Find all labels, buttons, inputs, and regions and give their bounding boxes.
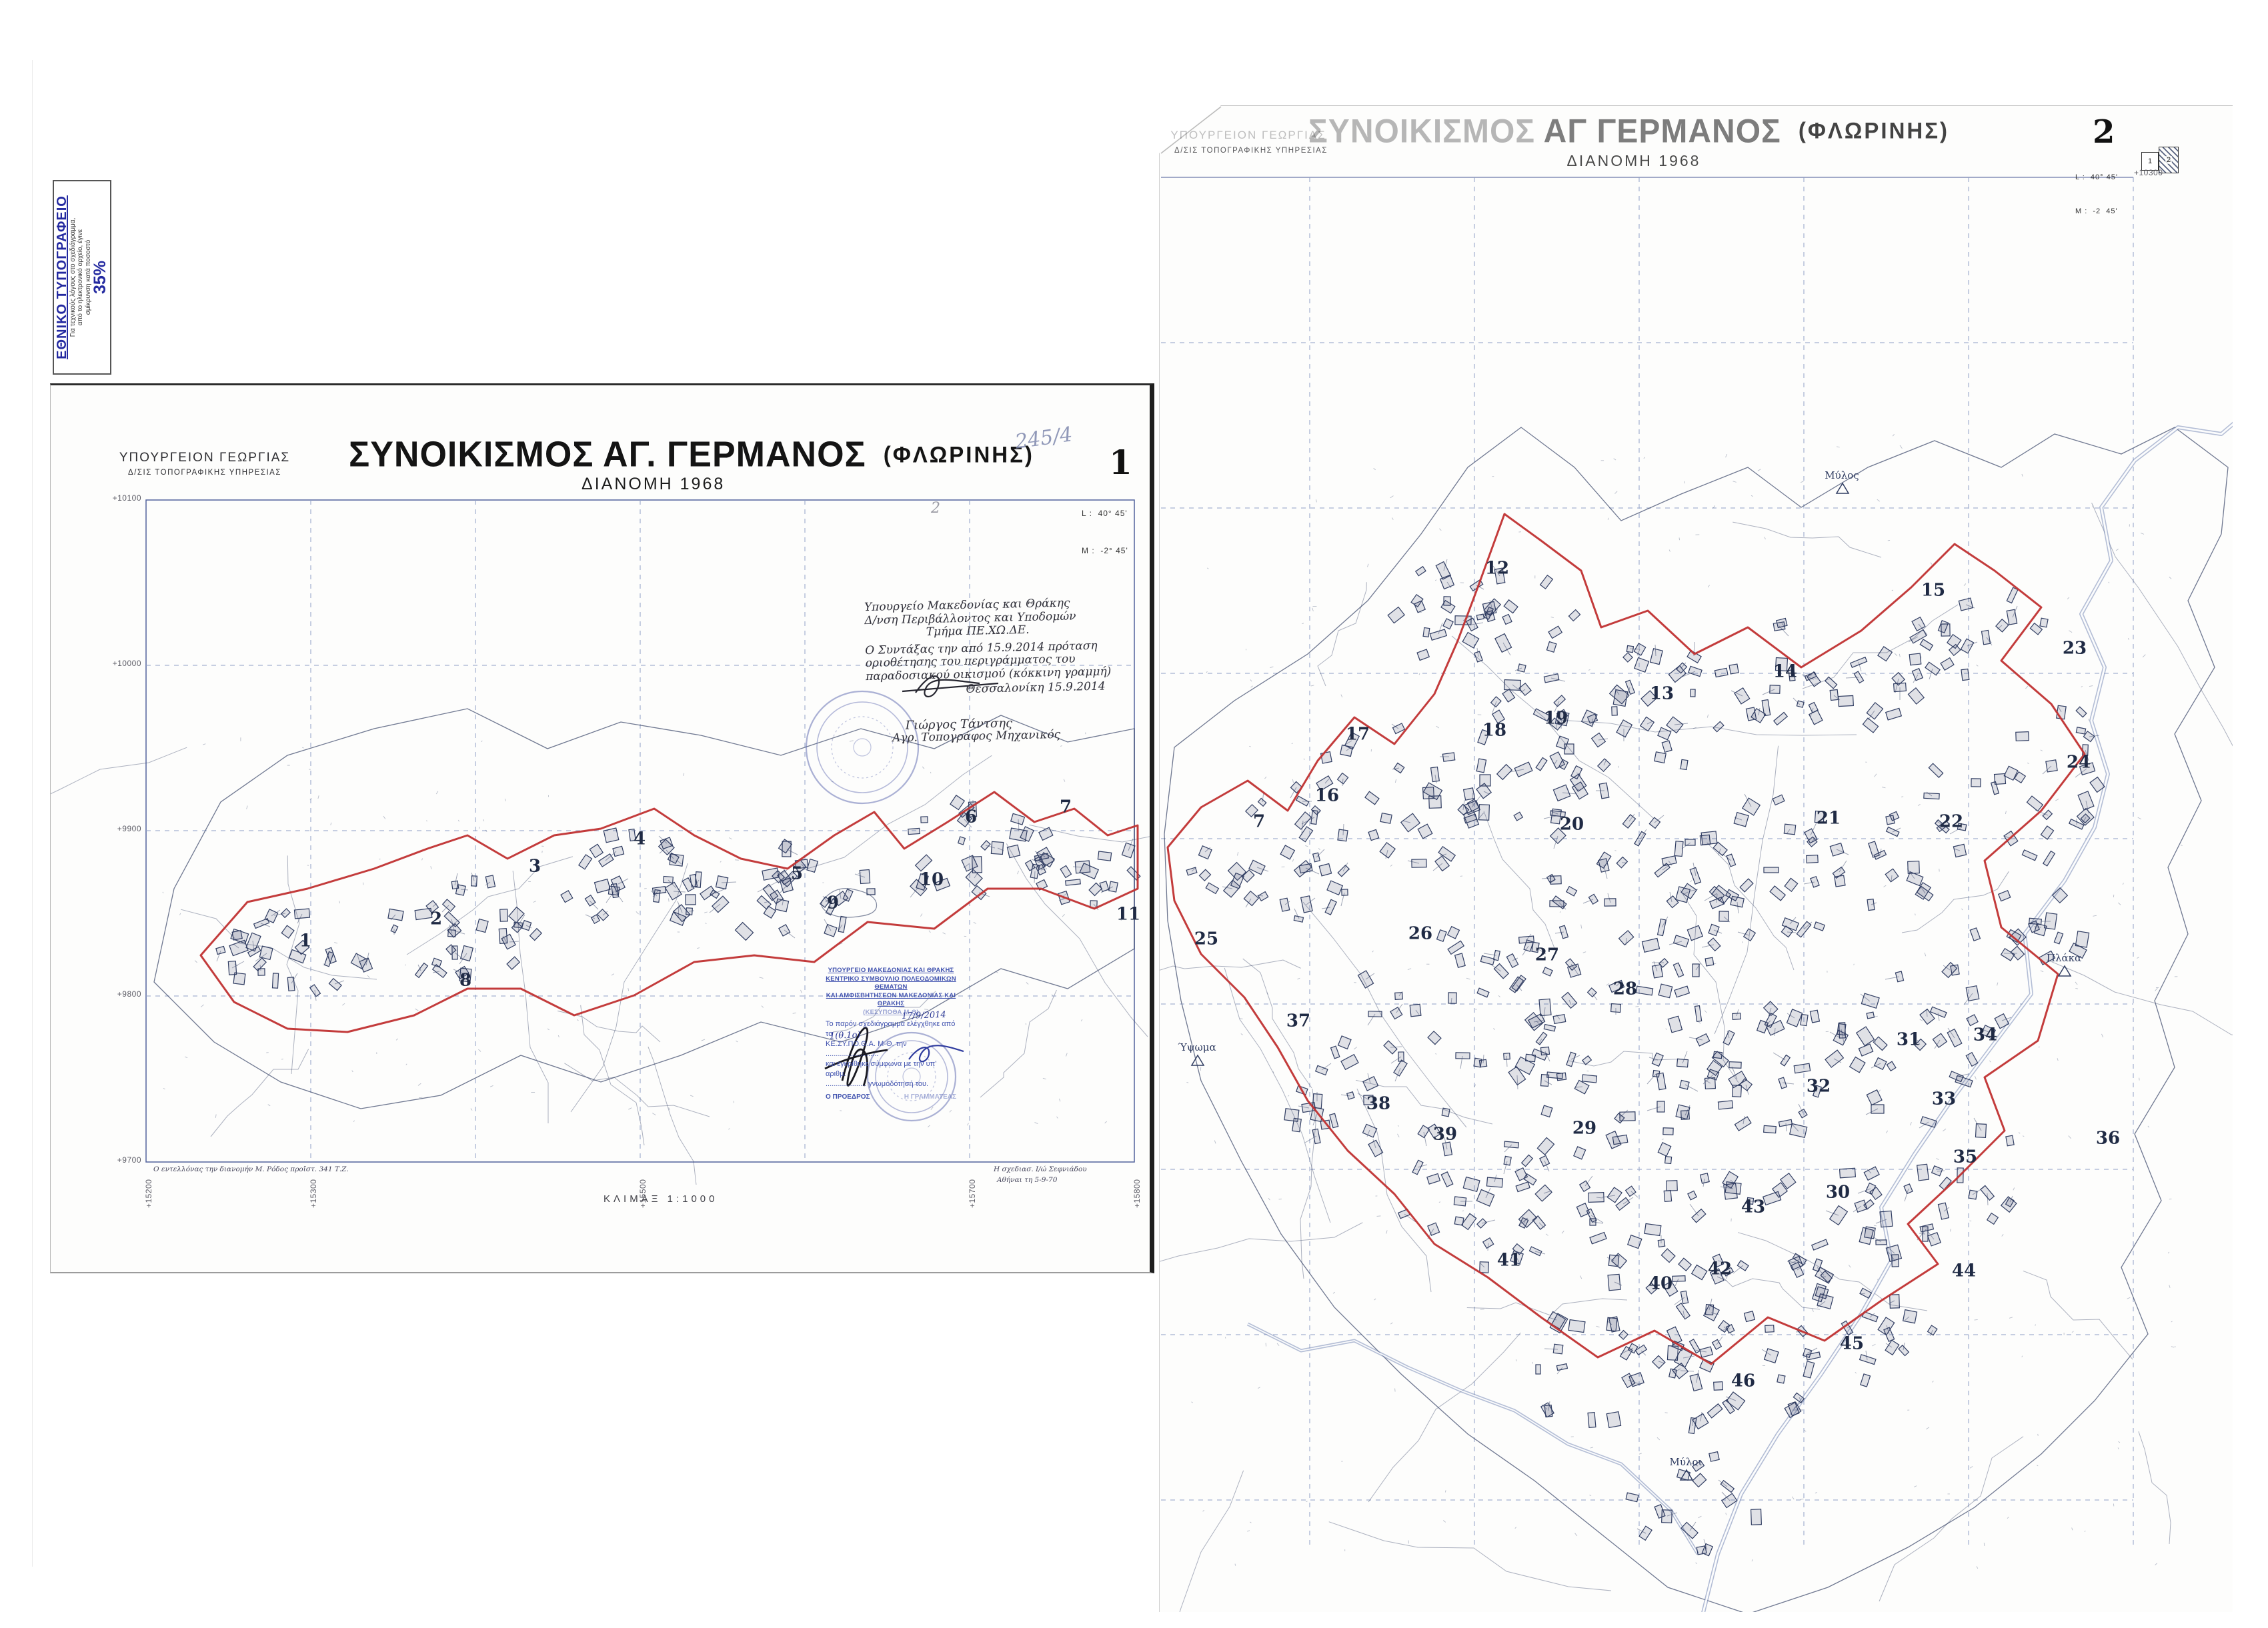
building	[1462, 1213, 1476, 1229]
scan-speck	[720, 861, 722, 863]
building	[1066, 879, 1081, 885]
stamp-header-line: ΥΠΟΥΡΓΕΙΟ ΜΑΚΕΔΟΝΙΑΣ ΚΑΙ ΘΡΑΚΗΣ	[826, 967, 956, 975]
building	[1799, 1109, 1807, 1118]
scan-speck	[353, 1121, 354, 1122]
building	[1537, 1137, 1554, 1155]
building	[1764, 1125, 1777, 1133]
scan-speck	[684, 773, 684, 776]
scan-speck	[2118, 903, 2121, 905]
scan-speck	[2039, 1047, 2040, 1047]
scan-speck	[1251, 686, 1253, 687]
sheet2-coord-l: L : 40° 45'	[2075, 172, 2118, 183]
stamp-secretary-label: Η ΓΡΑΜΜΑΤΕΑΣ	[904, 1093, 956, 1101]
building	[2043, 851, 2055, 866]
scan-speck	[2093, 915, 2097, 916]
building	[415, 963, 428, 978]
building	[1536, 1032, 1546, 1045]
building	[476, 919, 488, 932]
building	[1644, 1223, 1661, 1235]
building	[1707, 1404, 1723, 1418]
building	[1793, 1393, 1804, 1403]
building	[1864, 1167, 1879, 1180]
scan-speck	[1575, 1533, 1577, 1536]
scan-speck	[426, 821, 427, 821]
scan-speck	[533, 901, 536, 903]
sheet1-ministry: ΥΠΟΥΡΓΕΙΟΝ ΓΕΩΡΓΙΑΣ	[118, 451, 291, 465]
scan-speck	[1105, 1121, 1107, 1123]
block-number: 29	[1572, 1119, 1596, 1139]
building	[1674, 841, 1683, 857]
note-line: Θεσσαλονίκη 15.9.2014	[966, 680, 1126, 697]
building	[1442, 1108, 1450, 1117]
scan-speck	[628, 1108, 632, 1110]
building	[2076, 727, 2085, 734]
scan-speck	[1707, 715, 1708, 718]
scan-speck	[1043, 1078, 1046, 1079]
scan-speck	[2069, 631, 2072, 633]
scan-speck	[1849, 1265, 1851, 1267]
scan-speck	[652, 1113, 656, 1115]
scan-speck	[163, 1088, 165, 1089]
scan-speck	[1250, 679, 1252, 681]
scan-speck	[1989, 1061, 1991, 1062]
scan-speck	[1374, 468, 1376, 469]
building	[1462, 633, 1478, 648]
scan-speck	[431, 866, 431, 869]
scan-speck	[2141, 533, 2144, 535]
scan-speck	[1804, 1430, 1806, 1431]
scan-speck	[1679, 537, 1680, 540]
scan-speck	[1726, 1513, 1727, 1515]
building	[2041, 826, 2053, 839]
scan-speck	[1395, 1389, 1396, 1392]
building	[1550, 876, 1561, 885]
grid-label-northing: +10100	[100, 493, 141, 503]
building	[950, 795, 964, 810]
building	[1794, 1063, 1810, 1073]
building	[1442, 753, 1454, 761]
building	[1873, 1037, 1887, 1050]
scan-speck	[1493, 1029, 1494, 1030]
scan-speck	[1726, 454, 1727, 457]
parcel-line	[1733, 1265, 1743, 1273]
building	[1857, 1027, 1875, 1046]
scan-speck	[1974, 1319, 1977, 1320]
scan-speck	[1596, 1326, 1600, 1327]
building	[2027, 796, 2043, 811]
scan-speck	[1931, 563, 1932, 565]
building	[1327, 881, 1342, 895]
sheet2-title-part1: ΣΥΝΟΙΚΙΣΜΟΣ	[1308, 113, 1535, 150]
building	[1612, 707, 1617, 715]
stamp-header-line: ΚΑΙ ΑΜΦΙΣΒΗΤΗΣΕΩΝ ΜΑΚΕΔΟΝΙΑΣ ΚΑΙ ΘΡΑΚΗΣ	[826, 992, 956, 1009]
scan-speck	[490, 1085, 493, 1087]
block-number: 34	[1973, 1025, 1997, 1045]
scan-speck	[2023, 1136, 2024, 1137]
building	[1582, 1075, 1597, 1083]
building	[432, 958, 442, 967]
building	[1999, 891, 2011, 901]
scan-speck	[1367, 564, 1368, 567]
building	[1319, 863, 1331, 875]
scanned-map-document: ΕΘΝΙΚΟ ΤΥΠΟΓΡΑΦΕΙΟ Για τεχνικούς λόγους …	[0, 0, 2268, 1628]
building	[1773, 795, 1785, 805]
building	[1938, 1203, 1949, 1219]
scan-speck	[1733, 481, 1737, 483]
building	[1536, 757, 1547, 770]
building	[1504, 1156, 1511, 1165]
building	[1662, 741, 1672, 753]
building	[1502, 614, 1512, 624]
field-line	[1318, 582, 1366, 686]
scan-speck	[2169, 577, 2171, 579]
building	[1694, 1006, 1701, 1022]
field-line	[1329, 1522, 1611, 1591]
building	[1966, 1053, 1977, 1067]
scan-speck	[728, 1129, 730, 1130]
scan-speck	[1203, 1510, 1204, 1511]
building	[1903, 1310, 1917, 1323]
scan-speck	[1900, 445, 1902, 449]
scan-speck	[644, 889, 647, 889]
building	[1947, 635, 1961, 649]
building	[1568, 1320, 1585, 1333]
building	[1564, 744, 1574, 754]
scan-speck	[281, 1059, 283, 1060]
building	[1098, 851, 1111, 861]
scan-speck	[367, 975, 369, 978]
building	[1626, 1493, 1638, 1502]
scan-speck	[1977, 1566, 1978, 1568]
building	[1692, 964, 1699, 977]
building	[1825, 677, 1837, 688]
sheet1-title-main: ΣΥΝΟΙΚΙΣΜΟΣ ΑΓ. ΓΕΡΜΑΝΟΣ	[349, 435, 866, 475]
scan-speck	[558, 1035, 559, 1037]
block-number: 36	[2096, 1129, 2120, 1149]
building	[1721, 1481, 1734, 1493]
scan-speck	[1249, 746, 1251, 747]
building	[1867, 899, 1875, 911]
scan-speck	[1436, 726, 1439, 728]
scan-speck	[2089, 719, 2089, 721]
building	[1608, 1274, 1620, 1290]
scan-speck	[2155, 988, 2158, 991]
building	[1731, 896, 1744, 907]
building	[1801, 1015, 1808, 1026]
building	[561, 891, 573, 903]
building	[1912, 669, 1923, 681]
building	[1634, 657, 1649, 672]
scan-speck	[850, 741, 854, 741]
scan-speck	[2118, 1447, 2119, 1449]
sheet2-subtitle: ΔΙΑΝΟΜΗ 1968	[1554, 152, 1714, 170]
field-line	[2023, 1271, 2133, 1359]
building	[1628, 1235, 1642, 1249]
block-number: 6	[965, 807, 977, 827]
scan-speck	[481, 741, 482, 742]
scan-speck	[1372, 951, 1374, 952]
field-line	[1680, 890, 1739, 1083]
building	[1867, 1090, 1882, 1105]
building	[1803, 1361, 1815, 1378]
building	[1448, 927, 1460, 939]
building	[1663, 1128, 1673, 1135]
printing-office-line: από το ηλεκτρονικό αρχείο, έγινε	[77, 229, 84, 325]
scan-speck	[2041, 971, 2043, 972]
building	[991, 841, 1003, 854]
building	[1970, 928, 1980, 941]
building	[604, 828, 619, 843]
scan-speck	[1466, 978, 1470, 979]
building	[1206, 883, 1218, 893]
building	[1428, 1031, 1441, 1045]
building	[1692, 1473, 1707, 1487]
scan-speck	[505, 799, 505, 801]
building	[1688, 1191, 1696, 1199]
block-number: 32	[1807, 1077, 1831, 1097]
building	[1939, 1177, 1951, 1190]
scan-speck	[2169, 1285, 2170, 1288]
scan-speck	[1546, 1234, 1548, 1236]
scan-speck	[1034, 1123, 1038, 1124]
building	[1574, 1147, 1586, 1159]
scan-speck	[1943, 1129, 1946, 1131]
building	[1486, 1177, 1502, 1187]
building	[1341, 1055, 1358, 1070]
building	[1887, 1061, 1895, 1071]
scan-speck	[1997, 983, 1998, 986]
scan-speck	[2025, 686, 2028, 689]
building	[1672, 1276, 1685, 1282]
scan-speck	[1614, 459, 1616, 460]
scan-speck	[1751, 495, 1753, 496]
scan-speck	[1062, 914, 1065, 917]
field-line	[980, 990, 1056, 1097]
scan-speck	[422, 858, 423, 860]
building	[1779, 1119, 1792, 1126]
building	[1654, 863, 1670, 877]
grid-label-northing: +10000	[100, 659, 141, 668]
building	[1662, 856, 1676, 866]
scan-speck	[1439, 529, 1441, 531]
building	[1060, 865, 1071, 877]
building	[294, 909, 309, 919]
building	[1464, 788, 1475, 800]
sheet2-map-drawing	[1159, 105, 2237, 1613]
scan-speck	[1419, 673, 1420, 675]
scan-speck	[1884, 885, 1887, 887]
scan-speck	[1910, 1122, 1911, 1125]
printing-office-line: Για τεχνικούς λόγους στο σχεδιάγραμμα,	[69, 218, 77, 337]
building	[958, 837, 966, 845]
scan-speck	[1056, 1117, 1058, 1119]
field-line	[1357, 1089, 1431, 1292]
sheet1-coord-l: L : 40° 45'	[1082, 507, 1128, 520]
building	[1658, 727, 1671, 739]
scan-speck	[1874, 1225, 1877, 1226]
scan-speck	[195, 961, 197, 963]
field-line	[1159, 1471, 1244, 1613]
building	[1514, 812, 1522, 821]
scan-speck	[1225, 1337, 1226, 1338]
building	[2040, 618, 2048, 627]
scan-speck	[2069, 1136, 2071, 1139]
building	[590, 844, 603, 857]
scan-speck	[1277, 1343, 1279, 1346]
building	[1476, 759, 1486, 773]
scan-speck	[1026, 983, 1028, 985]
scan-speck	[201, 1005, 203, 1007]
scan-speck	[1302, 623, 1304, 624]
scan-speck	[1696, 1563, 1697, 1564]
block-number: 9	[827, 893, 839, 913]
scan-speck	[1580, 1275, 1581, 1279]
building	[916, 855, 932, 871]
river-center	[1248, 1324, 1698, 1554]
grid-label: +10300	[2134, 168, 2163, 177]
scan-speck	[2007, 1517, 2009, 1519]
scan-speck	[1288, 1095, 1289, 1096]
scan-speck	[2109, 582, 2109, 583]
building	[1556, 1073, 1566, 1081]
building	[664, 877, 674, 883]
building	[1011, 813, 1025, 825]
building	[1765, 1325, 1775, 1333]
scan-speck	[1297, 978, 1300, 979]
building	[1863, 718, 1878, 733]
building	[1920, 639, 1933, 651]
building	[1258, 892, 1268, 901]
building	[908, 828, 920, 834]
building	[1588, 894, 1598, 904]
building	[1626, 1186, 1636, 1196]
building	[1566, 887, 1577, 896]
scan-speck	[1854, 964, 1855, 965]
building	[1676, 1105, 1690, 1119]
building	[1690, 689, 1695, 697]
block-number: 4	[634, 829, 646, 849]
building	[1908, 861, 1920, 874]
building	[1330, 1113, 1338, 1127]
block-number: 20	[1560, 815, 1584, 835]
scan-speck	[405, 965, 406, 965]
building	[1476, 1189, 1494, 1206]
scan-speck	[1588, 669, 1590, 670]
scan-speck	[1207, 568, 1208, 569]
grid-label-easting: +15200	[144, 1169, 153, 1208]
building	[1917, 1164, 1929, 1181]
scan-speck	[1666, 1029, 1666, 1030]
building	[1797, 701, 1804, 707]
scan-speck	[920, 914, 922, 917]
scan-speck	[2171, 1347, 2175, 1347]
scan-speck	[1374, 1299, 1376, 1300]
scan-speck	[1961, 909, 1963, 910]
building	[1380, 813, 1392, 824]
scan-speck	[247, 806, 248, 809]
scan-speck	[1304, 759, 1304, 760]
building	[2054, 932, 2063, 944]
building	[2034, 923, 2047, 936]
scan-speck	[342, 1003, 345, 1005]
building	[1658, 984, 1672, 998]
building	[1541, 1105, 1552, 1117]
building	[1338, 1036, 1352, 1049]
block-number: 5	[791, 864, 803, 884]
building	[1430, 629, 1446, 640]
building	[259, 946, 273, 959]
building	[1331, 1046, 1340, 1059]
building	[444, 912, 459, 927]
building	[1810, 1010, 1819, 1023]
scan-speck	[577, 1019, 578, 1021]
block-number: 7	[1060, 797, 1072, 817]
building	[1665, 1157, 1672, 1164]
building	[1839, 695, 1854, 706]
building	[1662, 1510, 1672, 1523]
scan-speck	[1390, 1323, 1392, 1324]
building	[1867, 1012, 1874, 1019]
field-line	[1803, 605, 1958, 689]
building	[281, 909, 290, 917]
building	[1100, 881, 1108, 891]
scan-speck	[1644, 457, 1645, 459]
sheet2-coord-m: M : -2 45'	[2075, 206, 2118, 217]
scan-speck	[1059, 1099, 1060, 1101]
scan-speck	[1657, 1437, 1660, 1440]
scan-speck	[1932, 1381, 1933, 1382]
scan-speck	[2127, 1297, 2131, 1299]
parcel-line	[1773, 1053, 1785, 1060]
scan-speck	[1237, 852, 1238, 855]
scan-speck	[1562, 1231, 1564, 1233]
building	[1109, 881, 1118, 892]
building	[1673, 963, 1683, 977]
building	[1535, 1185, 1552, 1201]
scan-speck	[1937, 1159, 1939, 1160]
scan-speck	[1618, 766, 1619, 768]
grid-label-easting: +15300	[309, 1169, 318, 1208]
building	[1590, 1233, 1606, 1244]
building	[1705, 957, 1714, 966]
scan-speck	[697, 948, 700, 949]
scan-speck	[1882, 787, 1885, 788]
scan-speck	[2022, 1356, 2023, 1357]
scan-speck	[1250, 1522, 1251, 1523]
parcel-line	[1690, 1204, 1698, 1216]
scan-speck	[1615, 491, 1618, 494]
scan-speck	[1064, 779, 1065, 782]
building	[1658, 1143, 1670, 1156]
scan-speck	[2002, 1234, 2003, 1236]
field-line	[1733, 522, 1881, 557]
block-number: 7	[1253, 812, 1265, 832]
grid-label-easting: +15800	[1132, 1169, 1142, 1208]
scan-speck	[1800, 1499, 1803, 1499]
building	[1744, 929, 1756, 941]
scan-speck	[1560, 911, 1560, 912]
scan-speck	[547, 1029, 549, 1030]
map-sheet-1	[50, 383, 1154, 1273]
building	[1696, 1034, 1710, 1046]
field-line	[1879, 1437, 2023, 1601]
building	[1785, 878, 1797, 891]
scan-speck	[1765, 537, 1765, 539]
scan-speck	[1435, 1053, 1436, 1054]
scan-speck	[1698, 1022, 1700, 1024]
scan-speck	[1306, 1501, 1307, 1502]
scan-speck	[1976, 665, 1978, 666]
